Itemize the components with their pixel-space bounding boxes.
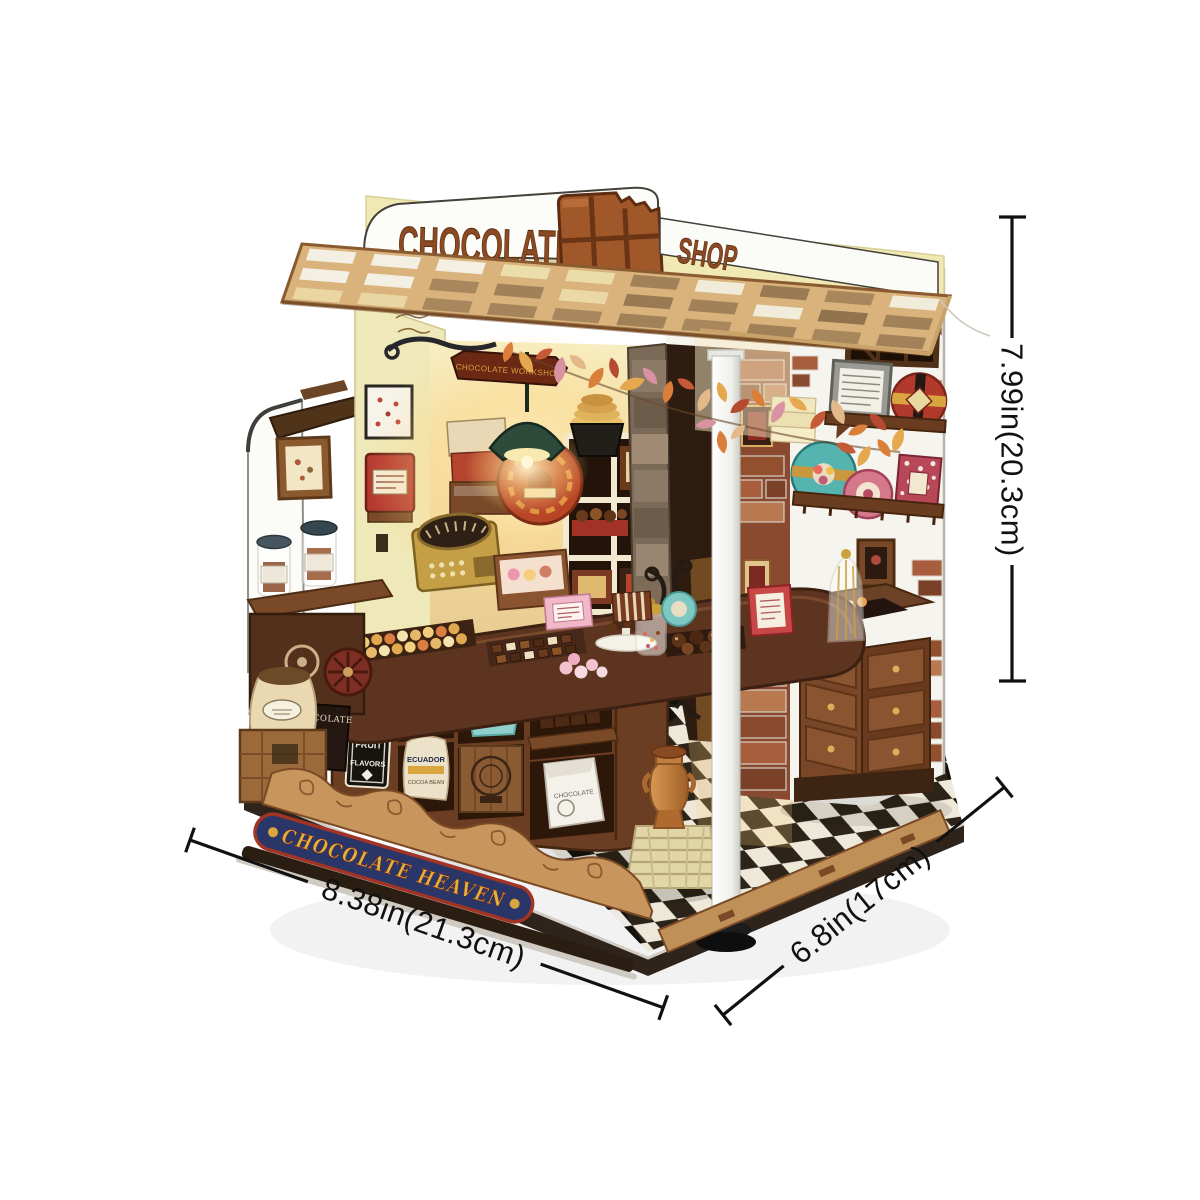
red-flywheel bbox=[325, 649, 371, 695]
framed-art-lower bbox=[858, 540, 894, 586]
striped-box bbox=[612, 591, 652, 622]
wood-eave bbox=[270, 396, 368, 438]
height-dimension: 7.99in(20.3cm) bbox=[995, 217, 1030, 681]
chocolate-paper-bag: CHOCOLATE bbox=[544, 758, 604, 828]
sack-label: ECUADOR bbox=[407, 755, 446, 764]
miniature-chocolate-shop-illustration: CHOCOLATE WORKSHOP bbox=[0, 0, 1200, 1200]
spice-jar bbox=[301, 521, 337, 586]
pink-candy-box bbox=[544, 594, 593, 630]
cocoa-sack-ecuador: ECUADOR COCOA BEAN bbox=[403, 736, 448, 800]
sack-label-sub: COCOA BEAN bbox=[408, 780, 444, 786]
framed-picture-left bbox=[277, 437, 331, 499]
stamped-crate bbox=[460, 746, 522, 812]
chalkboard-line: FLAVORS bbox=[350, 758, 386, 769]
teal-tin-counter bbox=[662, 592, 696, 626]
product-image: CHOCOLATE WORKSHOP bbox=[0, 0, 1200, 1200]
woven-basket bbox=[626, 826, 720, 888]
spice-jar bbox=[257, 536, 291, 597]
height-dimension-label: 7.99in(20.3cm) bbox=[995, 343, 1030, 557]
red-framed-card bbox=[748, 585, 793, 636]
